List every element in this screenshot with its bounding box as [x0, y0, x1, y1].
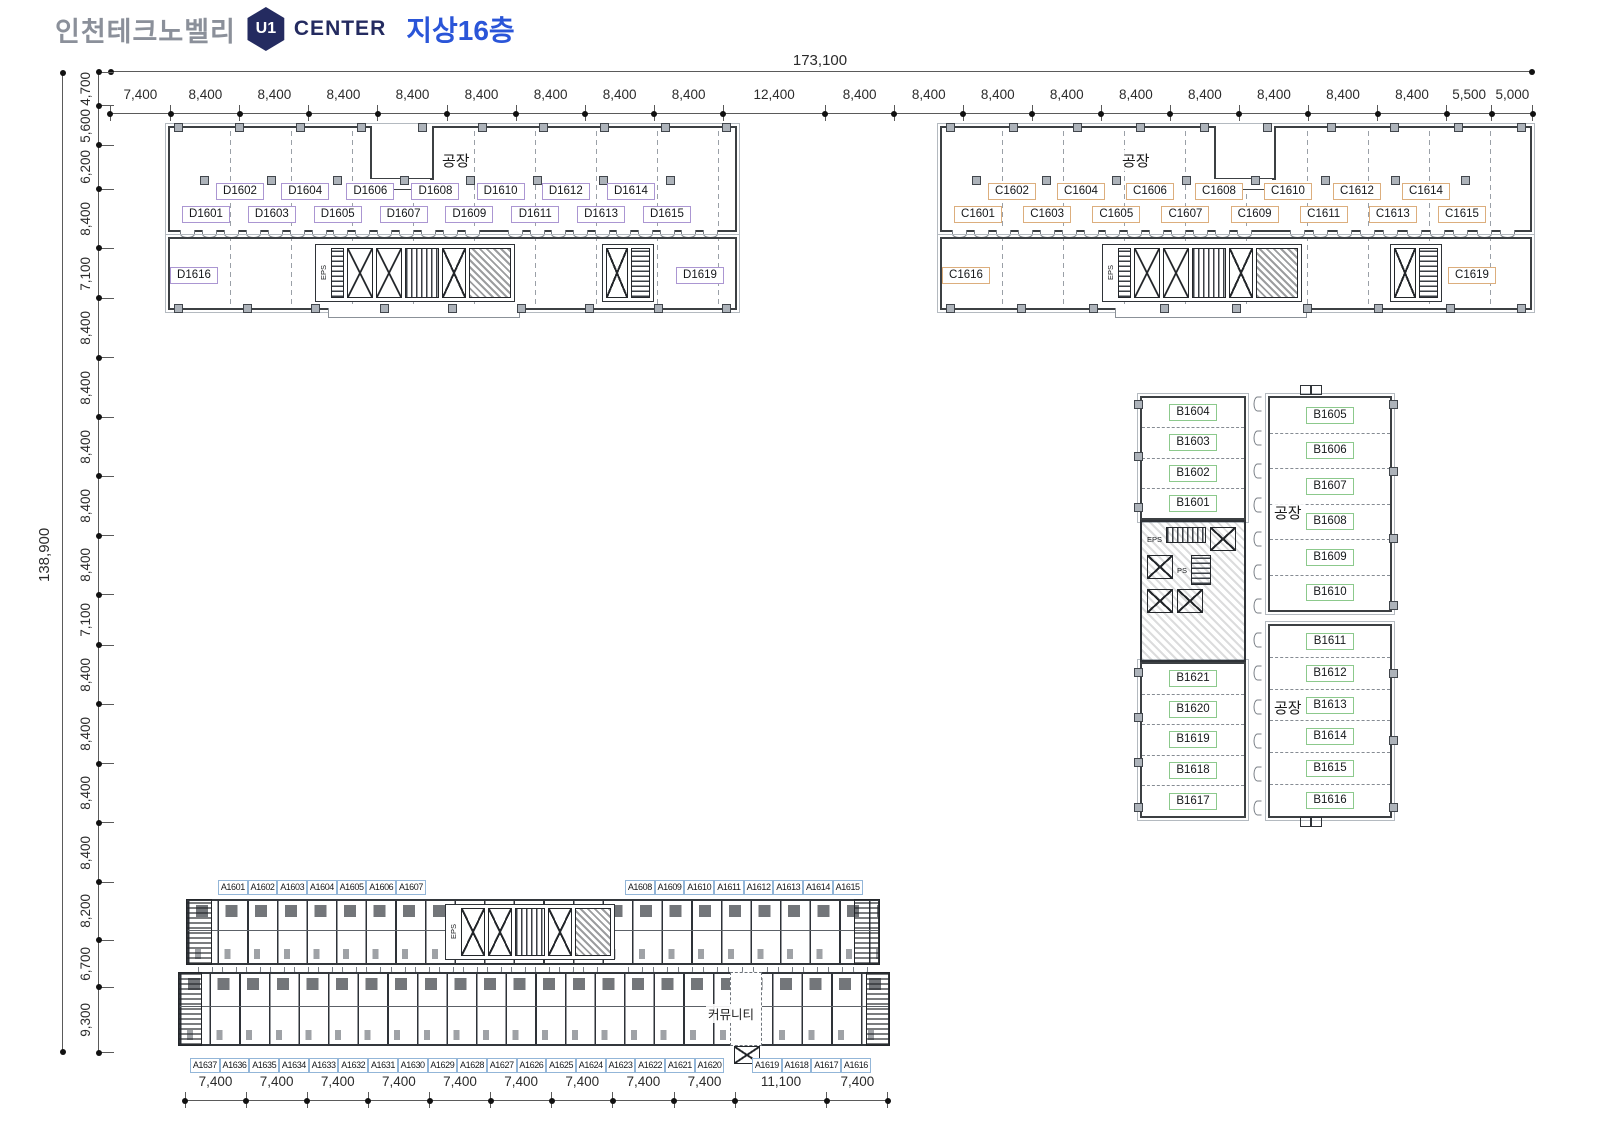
dimension-segment: 7,400: [552, 1074, 613, 1100]
room-label: B1617: [1169, 793, 1217, 810]
dimension-segment: 8,400: [72, 704, 98, 763]
column-pillar: [174, 304, 183, 313]
dimension-label: 6,200: [78, 150, 93, 184]
dimension-label: 5,000: [1495, 87, 1529, 102]
dimension-segment: 7,400: [110, 87, 171, 113]
block-b-west-lower: B1621B1620B1619B1618B1617: [1140, 662, 1246, 818]
elevator-shaft: [488, 908, 512, 956]
dimension-label: 7,400: [124, 87, 158, 102]
elevator-shaft: [1147, 589, 1173, 613]
door-arc: [1253, 632, 1261, 647]
room-label: A1603: [277, 880, 307, 895]
room-label: C1601: [954, 206, 1002, 223]
column-pillar: [1390, 123, 1399, 132]
dimension-segment: 8,400: [1032, 87, 1101, 113]
dimension-label: 8,400: [1119, 87, 1153, 102]
dimension-segment: 8,400: [1378, 87, 1447, 113]
room-label: D1605: [314, 206, 362, 223]
column-pillar: [1134, 758, 1143, 767]
stair-shaft: [515, 908, 545, 956]
dimension-segment: 7,100: [72, 248, 98, 298]
block-a: A1601A1602A1603A1604A1605A1606A1607 A160…: [178, 878, 890, 1074]
room-label: A1637: [190, 1058, 220, 1073]
room-label: C1614: [1402, 183, 1450, 200]
eps-shaft-label: EPS: [449, 924, 458, 939]
room-label: A1631: [368, 1058, 398, 1073]
room-label: B1616: [1306, 792, 1354, 809]
factory-label: 공장: [440, 150, 472, 171]
room-label: A1624: [576, 1058, 606, 1073]
room-label: C1604: [1057, 183, 1105, 200]
room-label: C1616: [942, 267, 990, 284]
dimension-segment: 8,400: [1101, 87, 1170, 113]
dimension-label: 8,400: [78, 776, 93, 810]
dimension-label: 4,700: [78, 72, 93, 106]
facade-recess: [1214, 126, 1276, 180]
dimension-segment: 8,400: [240, 87, 309, 113]
stair-slab: [186, 899, 212, 965]
block-c: 공장 C1602C1604C1606C1608C1610C1612C1614 C…: [940, 126, 1532, 310]
room-label: C1606: [1126, 183, 1174, 200]
dimension-segment: 8,400: [72, 823, 98, 882]
room-label: C1609: [1231, 206, 1279, 223]
room-label: D1606: [346, 183, 394, 200]
column-pillar: [722, 304, 731, 313]
column-pillar: [1134, 400, 1143, 409]
dimension-label: 7,400: [443, 1074, 477, 1089]
dimension-segment: 8,200: [72, 882, 98, 940]
column-pillar: [380, 304, 389, 313]
column-pillar: [1200, 123, 1209, 132]
column-pillar: [1461, 176, 1470, 185]
column-pillar: [418, 123, 427, 132]
column-pillar: [311, 304, 320, 313]
room-cell: B1620: [1142, 695, 1244, 726]
column-pillar: [1389, 534, 1398, 543]
room-label-row: D1601D1603D1605D1607D1609D1611D1613D1615: [182, 206, 691, 223]
dimension-label: 8,400: [672, 87, 706, 102]
column-pillar: [1160, 304, 1169, 313]
column-pillar: [972, 176, 981, 185]
dimension-line-top: [110, 71, 1533, 72]
room-label: C1619: [1448, 267, 1496, 284]
dimension-segment: 9,300: [72, 987, 98, 1053]
dimension-label: 7,400: [382, 1074, 416, 1089]
dimension-segment: 5,600: [72, 106, 98, 146]
u1-logo-text: U1: [256, 20, 276, 38]
dimension-label: 8,400: [912, 87, 946, 102]
dimension-label: 8,400: [78, 202, 93, 236]
room-label: B1621: [1169, 670, 1217, 687]
room-cell: B1610: [1270, 576, 1390, 611]
room-cell: B1607: [1270, 469, 1390, 505]
room-label: D1614: [607, 183, 655, 200]
room-label: C1607: [1161, 206, 1209, 223]
dimension-label: 8,400: [78, 371, 93, 405]
factory-label: 공장: [1272, 502, 1304, 523]
room-label: D1603: [248, 206, 296, 223]
room-label: D1604: [281, 183, 329, 200]
column-pillar: [1389, 467, 1398, 476]
room-label-row: A1619A1618A1617A1616: [752, 1058, 871, 1073]
room-label: A1613: [773, 880, 803, 895]
column-pillar: [722, 123, 731, 132]
dimension-row-left: 4,7005,6006,2008,4007,1008,4008,4008,400…: [72, 72, 99, 1053]
dimension-label: 7,100: [78, 257, 93, 291]
column-pillar: [1134, 503, 1143, 512]
core-side: [602, 244, 654, 302]
room-label: A1601: [218, 880, 248, 895]
room-label: B1605: [1306, 407, 1354, 424]
column-pillar: [296, 123, 305, 132]
dimension-label: 7,100: [78, 603, 93, 637]
dimension-label: 7,400: [565, 1074, 599, 1089]
dimension-segment: 7,400: [613, 1074, 674, 1100]
column-pillar: [1263, 123, 1272, 132]
column-pillar: [1134, 668, 1143, 677]
room-label: A1626: [517, 1058, 547, 1073]
room-label: C1603: [1023, 206, 1071, 223]
room-label: A1636: [220, 1058, 250, 1073]
room-cell: B1615: [1270, 753, 1390, 785]
dimension-segment: 8,400: [72, 476, 98, 535]
dimension-segment: 8,400: [654, 87, 723, 113]
elevator-shaft: [606, 248, 628, 298]
brand-title: 인천테크노벨리: [55, 10, 236, 49]
room-label-row: A1608A1609A1610A1611A1612A1613A1614A1615: [625, 880, 863, 895]
room-label: A1610: [684, 880, 714, 895]
dimension-segment: 8,400: [72, 645, 98, 704]
room-label: A1627: [487, 1058, 517, 1073]
dimension-segment: 8,400: [1170, 87, 1239, 113]
room-label: A1607: [396, 880, 426, 895]
room-label: A1630: [398, 1058, 428, 1073]
column-pillar: [1136, 123, 1145, 132]
room-label: B1601: [1169, 495, 1217, 512]
room-label: C1602: [988, 183, 1036, 200]
dimension-label: 8,400: [78, 489, 93, 523]
room-label: C1615: [1438, 206, 1486, 223]
room-label: A1629: [428, 1058, 458, 1073]
factory-label: 공장: [1272, 697, 1304, 718]
room-cell: B1602: [1142, 459, 1244, 489]
elevator-shaft: [1229, 248, 1253, 298]
column-pillar: [661, 123, 670, 132]
door-arc: [1253, 565, 1261, 580]
room-cell: B1609: [1270, 540, 1390, 576]
dimension-total-width: 173,100: [745, 52, 895, 69]
column-pillar: [174, 123, 183, 132]
room-label: D1607: [380, 206, 428, 223]
dimension-label: 7,400: [840, 1074, 874, 1089]
door-arc: [1253, 598, 1261, 613]
column-pillar: [1517, 123, 1526, 132]
elevator-shaft: [376, 248, 402, 298]
room-label: D1602: [216, 183, 264, 200]
title-bar: 인천테크노벨리 U1 CENTER 지상16층: [55, 8, 515, 50]
dimension-label: 8,400: [188, 87, 222, 102]
room-label: A1606: [366, 880, 396, 895]
column-pillar: [600, 123, 609, 132]
dimension-segment: 4,700: [72, 72, 98, 106]
room-label: B1607: [1306, 478, 1354, 495]
dimension-segment: 8,400: [72, 417, 98, 476]
room-label: D1608: [411, 183, 459, 200]
room-label-row: A1637A1636A1635A1634A1633A1632A1631A1630…: [190, 1058, 724, 1073]
dimension-label: 6,700: [78, 947, 93, 981]
column-pillar: [1009, 123, 1018, 132]
room-label: D1611: [511, 206, 559, 223]
door-arc: [1253, 767, 1261, 782]
elevator-shaft: [1134, 248, 1160, 298]
room-label: A1634: [279, 1058, 309, 1073]
ps-shaft-label: PS: [1177, 566, 1187, 575]
dimension-segment: 8,400: [447, 87, 516, 113]
dimension-label: 5,600: [78, 109, 93, 143]
room-label: D1619: [676, 267, 724, 284]
factory-label: 공장: [1120, 150, 1152, 171]
dimension-label: 8,400: [603, 87, 637, 102]
door-arc: [1253, 430, 1261, 445]
column-pillar: [1134, 803, 1143, 812]
room-cell: B1601: [1142, 489, 1244, 518]
dimension-label: 8,400: [465, 87, 499, 102]
column-pillar: [200, 176, 209, 185]
dimension-segment: 8,400: [1308, 87, 1377, 113]
door-arc: [1253, 733, 1261, 748]
room-cell: B1605: [1270, 398, 1390, 434]
column-pillar: [235, 123, 244, 132]
room-label: B1606: [1306, 442, 1354, 459]
vent-shaft: [1300, 385, 1322, 395]
room-cell: B1606: [1270, 434, 1390, 470]
room-label-row: D1602D1604D1606D1608D1610D1612D1614: [216, 183, 655, 200]
dimension-label: 7,400: [627, 1074, 661, 1089]
column-pillar: [654, 304, 663, 313]
room-label: B1611: [1306, 633, 1354, 650]
room-label: A1633: [309, 1058, 339, 1073]
column-pillar: [585, 304, 594, 313]
dimension-segment: 7,400: [430, 1074, 491, 1100]
column-pillar: [1134, 452, 1143, 461]
room-label: A1619: [752, 1058, 782, 1073]
room-label: A1618: [782, 1058, 812, 1073]
room-label-row: C1601C1603C1605C1607C1609C1611C1613C1615: [954, 206, 1486, 223]
room-label: B1619: [1169, 731, 1217, 748]
column-pillar: [1446, 304, 1455, 313]
dimension-segment: 8,400: [72, 764, 98, 823]
dimension-label: 8,400: [78, 658, 93, 692]
room-label: A1604: [307, 880, 337, 895]
dimension-label: 8,400: [981, 87, 1015, 102]
elevator-shaft: [442, 248, 466, 298]
room-label: C1610: [1264, 183, 1312, 200]
door-arc: [1253, 464, 1261, 479]
room-label-row: A1601A1602A1603A1604A1605A1606A1607: [218, 880, 426, 895]
room-label: C1608: [1195, 183, 1243, 200]
column-pillar: [1389, 601, 1398, 610]
dimension-segment: 8,400: [1239, 87, 1308, 113]
column-pillar: [1517, 304, 1526, 313]
room-label: B1613: [1306, 697, 1354, 714]
block-a-south-wing: [178, 972, 890, 1046]
dimension-segment: 6,700: [72, 940, 98, 987]
dimension-label: 8,400: [258, 87, 292, 102]
elevator-shaft: [461, 908, 485, 956]
stair-shaft: [1118, 248, 1131, 298]
dimension-label: 7,400: [321, 1074, 355, 1089]
column-pillar: [1073, 123, 1082, 132]
dimension-label: 8,400: [396, 87, 430, 102]
dimension-segment: 8,400: [825, 87, 894, 113]
room-cell: B1616: [1270, 785, 1390, 816]
dimension-segment: 5,500: [1447, 87, 1492, 113]
stair-shaft: [631, 248, 650, 298]
room-cell: B1603: [1142, 428, 1244, 458]
dimension-segment: 8,400: [378, 87, 447, 113]
elevator-shaft: [347, 248, 373, 298]
logo-center-label: CENTER: [294, 17, 386, 41]
room-label: C1605: [1092, 206, 1140, 223]
dimension-segment: 8,400: [963, 87, 1032, 113]
dimension-label: 8,400: [1326, 87, 1360, 102]
column-pillar: [1389, 669, 1398, 678]
dimension-segment: 7,400: [307, 1074, 368, 1100]
eps-shaft-label: EPS: [1106, 265, 1115, 280]
facade-recess: [370, 126, 434, 180]
block-c-south-wing: EPS C1619C1618C1617C1616: [940, 237, 1532, 310]
room-cell: B1618: [1142, 756, 1244, 787]
dimension-line-left: [62, 72, 63, 1053]
dimension-segment: 8,400: [72, 358, 98, 417]
column-pillar: [1374, 304, 1383, 313]
dimension-segment: 8,400: [72, 189, 98, 248]
room-label: B1604: [1169, 404, 1217, 421]
dimension-segment: 7,400: [368, 1074, 429, 1100]
room-label: A1621: [665, 1058, 695, 1073]
room-label: D1610: [477, 183, 525, 200]
dimension-label: 8,400: [78, 548, 93, 582]
block-b-east-lower: B1611B1612B1613B1614B1615B1616: [1268, 624, 1392, 818]
door-arc: [1253, 497, 1261, 512]
room-label: D1601: [182, 206, 230, 223]
column-pillar: [666, 176, 675, 185]
stair-shaft: [1166, 527, 1206, 543]
dimension-segment: 5,000: [1492, 87, 1533, 113]
dimension-segment: 7,400: [185, 1074, 246, 1100]
stair-shaft: [405, 248, 439, 298]
stair-slab: [178, 972, 202, 1046]
door-arc: [1253, 531, 1261, 546]
room-label: A1622: [635, 1058, 665, 1073]
dimension-segment: 8,400: [72, 536, 98, 595]
room-label: A1605: [337, 880, 367, 895]
room-label: A1602: [248, 880, 278, 895]
elevator-shaft: [548, 908, 572, 956]
dimension-label: 8,400: [1050, 87, 1084, 102]
dimension-label: 8,400: [78, 311, 93, 345]
column-pillar: [1389, 803, 1398, 812]
room-cell: B1617: [1142, 786, 1244, 816]
room-label: B1615: [1306, 760, 1354, 777]
stair-slab: [866, 972, 890, 1046]
column-pillar: [946, 123, 955, 132]
column-pillar: [1389, 400, 1398, 409]
room-label: D1609: [445, 206, 493, 223]
block-c-north-wing: 공장 C1602C1604C1606C1608C1610C1612C1614 C…: [940, 126, 1532, 232]
dimension-label: 7,400: [199, 1074, 233, 1089]
dimension-segment: 12,400: [723, 87, 825, 113]
service-rooms: [575, 908, 611, 956]
u1-logo-icon: U1: [246, 7, 286, 51]
dimension-row-bottom: 7,4007,4007,4007,4007,4007,4007,4007,400…: [185, 1074, 888, 1101]
room-label: C1613: [1369, 206, 1417, 223]
dimension-label: 8,400: [327, 87, 361, 102]
column-pillar: [1454, 123, 1463, 132]
dimension-label: 8,400: [843, 87, 877, 102]
block-b: B1604B1603B1602B1601 EPS PS B1621B1620B1…: [1140, 394, 1392, 818]
room-label: B1608: [1306, 513, 1354, 530]
stair-shaft: [1192, 248, 1226, 298]
column-pillar: [1017, 304, 1026, 313]
block-d-north-wing: 공장 D1602D1604D1606D1608D1610D1612D1614 D…: [168, 126, 737, 232]
column-pillar: [517, 304, 526, 313]
dimension-label: 8,400: [1257, 87, 1291, 102]
dimension-label: 12,400: [754, 87, 795, 102]
room-label: D1612: [542, 183, 590, 200]
eps-shaft-label: EPS: [319, 265, 328, 280]
room-label: A1612: [744, 880, 774, 895]
room-label: A1623: [606, 1058, 636, 1073]
dimension-label: 5,500: [1452, 87, 1486, 102]
room-label: D1616: [170, 267, 218, 284]
column-pillar: [478, 123, 487, 132]
eps-shaft-label: EPS: [1147, 535, 1162, 544]
dimension-label: 7,400: [504, 1074, 538, 1089]
room-label: A1609: [655, 880, 685, 895]
elevator-shaft: [1210, 527, 1236, 551]
room-label: A1625: [546, 1058, 576, 1073]
room-label: D1613: [577, 206, 625, 223]
dimension-label: 8,400: [78, 430, 93, 464]
community-label: 커뮤니티: [706, 1004, 756, 1023]
room-label: A1615: [833, 880, 863, 895]
core-side: [1390, 244, 1442, 302]
column-pillar: [539, 123, 548, 132]
room-label-row: C1602C1604C1606C1608C1610C1612C1614: [988, 183, 1450, 200]
door-arc: [1253, 699, 1261, 714]
floor-label: 지상16층: [406, 9, 514, 49]
column-pillar: [1232, 304, 1241, 313]
service-rooms: [469, 248, 511, 298]
core-elevator-stair: EPS: [1102, 244, 1302, 302]
room-label: A1616: [841, 1058, 871, 1073]
column-pillar: [1134, 713, 1143, 722]
room-label: C1612: [1333, 183, 1381, 200]
block-a-core: EPS: [445, 904, 615, 960]
dimension-segment: 7,100: [72, 595, 98, 645]
floorplan-page: 인천테크노벨리 U1 CENTER 지상16층 173,100 7,4008,4…: [0, 0, 1600, 1124]
room-label: A1611: [714, 880, 744, 895]
room-label: A1632: [338, 1058, 368, 1073]
room-cell: B1604: [1142, 398, 1244, 428]
service-rooms: [1256, 248, 1298, 298]
column-pillar: [1327, 123, 1336, 132]
stair-shaft: [1419, 248, 1438, 298]
dimension-label: 8,200: [78, 894, 93, 928]
room-label: A1608: [625, 880, 655, 895]
elevator-shaft: [1394, 248, 1416, 298]
